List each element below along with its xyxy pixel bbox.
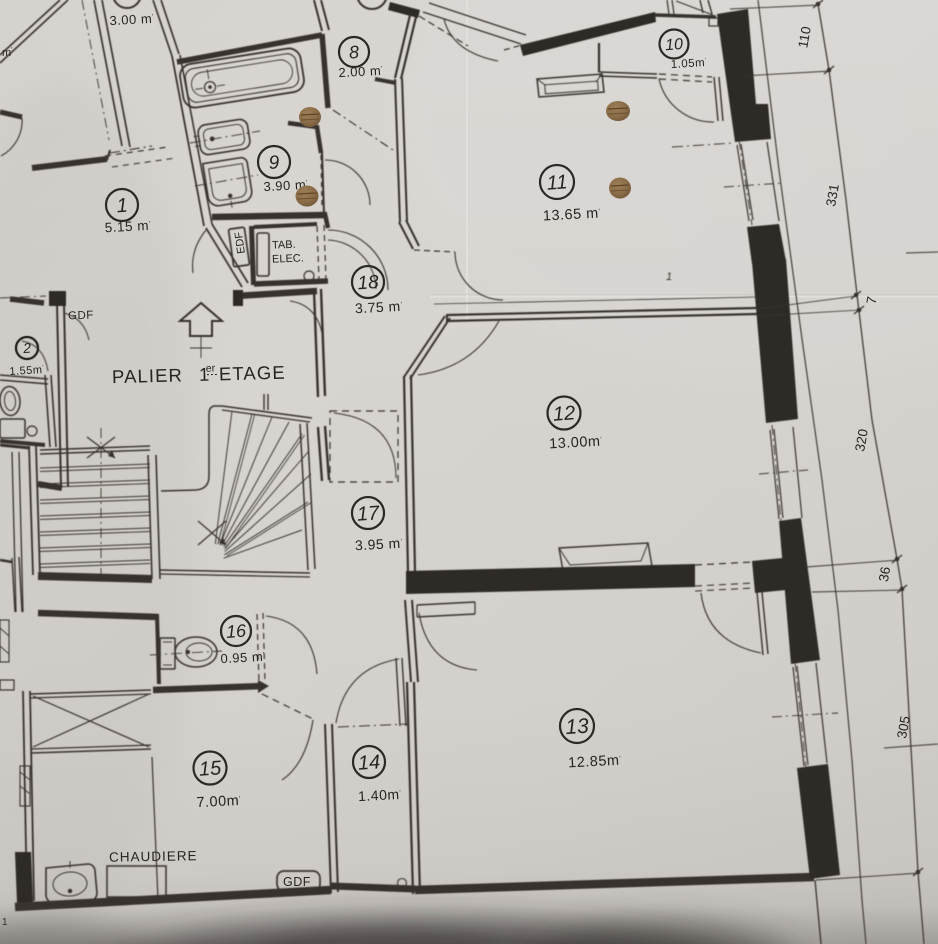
svg-text:9: 9 bbox=[268, 152, 280, 174]
svg-text:ETAGE: ETAGE bbox=[219, 362, 286, 385]
svg-text:5.15 m': 5.15 m' bbox=[104, 218, 151, 235]
svg-text:0.95 m': 0.95 m' bbox=[220, 649, 265, 666]
svg-text:13: 13 bbox=[565, 715, 590, 740]
svg-text:13.65 m': 13.65 m' bbox=[543, 206, 602, 225]
svg-text:3.75 m': 3.75 m' bbox=[355, 298, 403, 316]
svg-text:11: 11 bbox=[546, 171, 568, 194]
svg-text:TAB.: TAB. bbox=[272, 239, 296, 252]
svg-text:CHAUDIERE: CHAUDIERE bbox=[109, 848, 198, 865]
svg-text:GDF: GDF bbox=[68, 310, 94, 323]
svg-text:13.00m': 13.00m' bbox=[549, 434, 603, 453]
svg-text:12: 12 bbox=[552, 402, 576, 425]
svg-text:er: er bbox=[206, 362, 216, 374]
svg-text:3.95 m': 3.95 m' bbox=[355, 535, 403, 553]
svg-text:15: 15 bbox=[198, 757, 223, 781]
svg-text:8: 8 bbox=[348, 42, 359, 63]
svg-text:3.00 m': 3.00 m' bbox=[109, 11, 154, 28]
svg-text:10: 10 bbox=[665, 36, 684, 54]
svg-text:2.00 m': 2.00 m' bbox=[338, 63, 383, 80]
svg-text:1: 1 bbox=[116, 195, 129, 218]
svg-text:36: 36 bbox=[876, 566, 893, 583]
svg-text:ELEC.: ELEC. bbox=[272, 253, 304, 266]
svg-text:m': m' bbox=[2, 47, 13, 59]
svg-text:2: 2 bbox=[22, 340, 32, 357]
svg-text:18: 18 bbox=[357, 272, 380, 294]
svg-text:14: 14 bbox=[357, 751, 381, 774]
svg-text:1.55m': 1.55m' bbox=[9, 364, 44, 378]
svg-text:1.40m': 1.40m' bbox=[358, 786, 402, 804]
svg-text:12.85m': 12.85m' bbox=[568, 753, 622, 772]
svg-text:1: 1 bbox=[666, 271, 672, 283]
svg-text:1.05m': 1.05m' bbox=[670, 57, 707, 71]
svg-text:16: 16 bbox=[225, 621, 247, 642]
svg-text:7.00m': 7.00m' bbox=[196, 793, 241, 811]
svg-text:17: 17 bbox=[356, 502, 381, 526]
svg-text:PALIER: PALIER bbox=[112, 364, 184, 387]
